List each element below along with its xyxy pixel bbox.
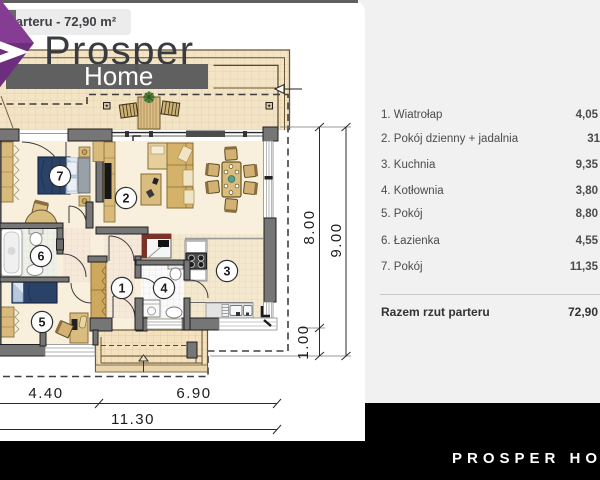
svg-text:1.00: 1.00 xyxy=(295,324,312,359)
svg-text:2: 2 xyxy=(123,192,130,206)
svg-text:9.00: 9.00 xyxy=(328,222,345,257)
svg-text:3: 3 xyxy=(224,265,231,279)
svg-text:4: 4 xyxy=(161,282,168,296)
svg-text:1: 1 xyxy=(119,282,126,296)
svg-text:6.90: 6.90 xyxy=(176,385,211,402)
svg-text:11.30: 11.30 xyxy=(111,411,155,428)
svg-text:6: 6 xyxy=(38,250,45,264)
svg-text:8.00: 8.00 xyxy=(301,209,318,244)
svg-text:5: 5 xyxy=(39,316,46,330)
svg-text:7: 7 xyxy=(57,170,64,184)
svg-text:4.40: 4.40 xyxy=(28,385,63,402)
